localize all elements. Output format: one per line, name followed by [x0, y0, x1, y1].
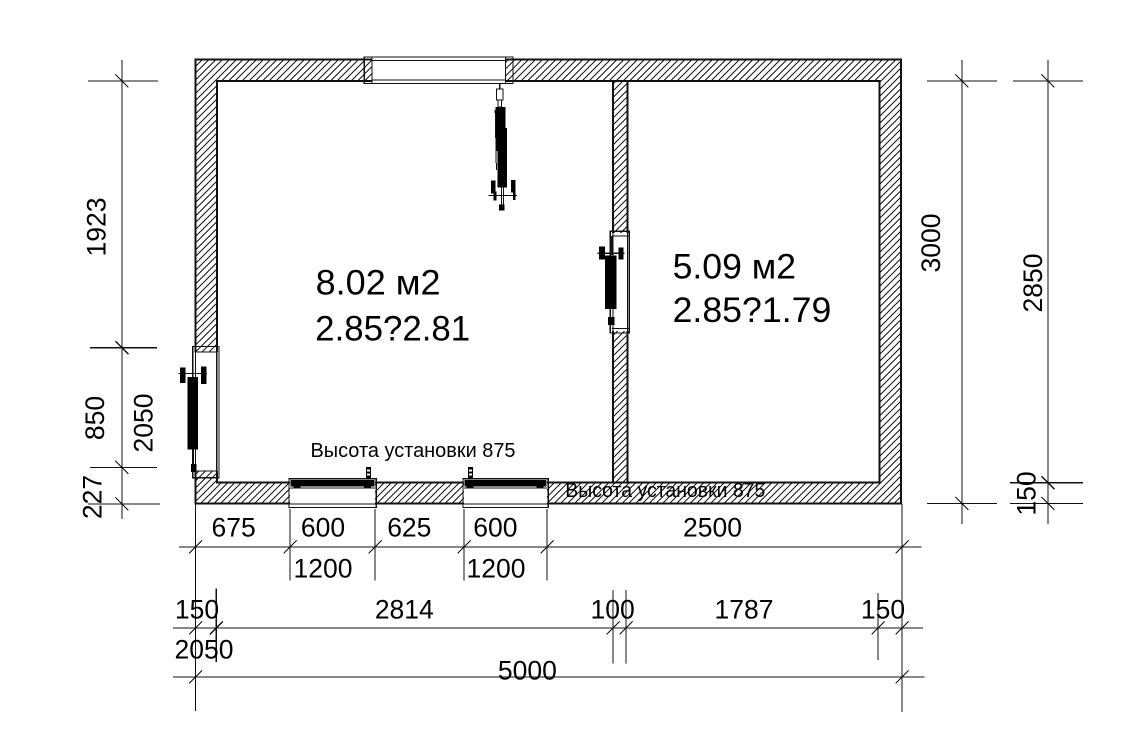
svg-text:2500: 2500 — [683, 513, 742, 543]
svg-text:2.85?1.79: 2.85?1.79 — [673, 291, 832, 330]
svg-text:600: 600 — [473, 513, 517, 543]
svg-text:1200: 1200 — [294, 553, 353, 583]
svg-text:850: 850 — [80, 396, 110, 440]
svg-text:5.09 м2: 5.09 м2 — [673, 248, 797, 287]
svg-text:150: 150 — [175, 594, 219, 624]
svg-text:227: 227 — [78, 475, 108, 519]
svg-text:3000: 3000 — [916, 214, 946, 273]
svg-text:Высота установки 875: Высота установки 875 — [565, 480, 765, 502]
svg-text:2814: 2814 — [375, 594, 434, 624]
svg-text:5000: 5000 — [498, 656, 557, 686]
svg-text:1200: 1200 — [467, 553, 526, 583]
svg-text:2050: 2050 — [175, 635, 234, 665]
svg-text:8.02 м2: 8.02 м2 — [316, 264, 441, 303]
svg-text:2.85?2.81: 2.85?2.81 — [315, 310, 470, 349]
svg-text:600: 600 — [301, 513, 345, 543]
svg-text:150: 150 — [1012, 471, 1042, 515]
svg-text:Высота установки 875: Высота установки 875 — [311, 440, 516, 462]
svg-text:1923: 1923 — [82, 198, 112, 257]
svg-text:150: 150 — [861, 594, 905, 624]
svg-text:1787: 1787 — [715, 594, 774, 624]
svg-text:2050: 2050 — [129, 394, 159, 453]
svg-text:675: 675 — [211, 513, 255, 543]
svg-text:100: 100 — [590, 594, 634, 624]
svg-text:2850: 2850 — [1018, 254, 1048, 313]
svg-text:625: 625 — [387, 513, 431, 543]
